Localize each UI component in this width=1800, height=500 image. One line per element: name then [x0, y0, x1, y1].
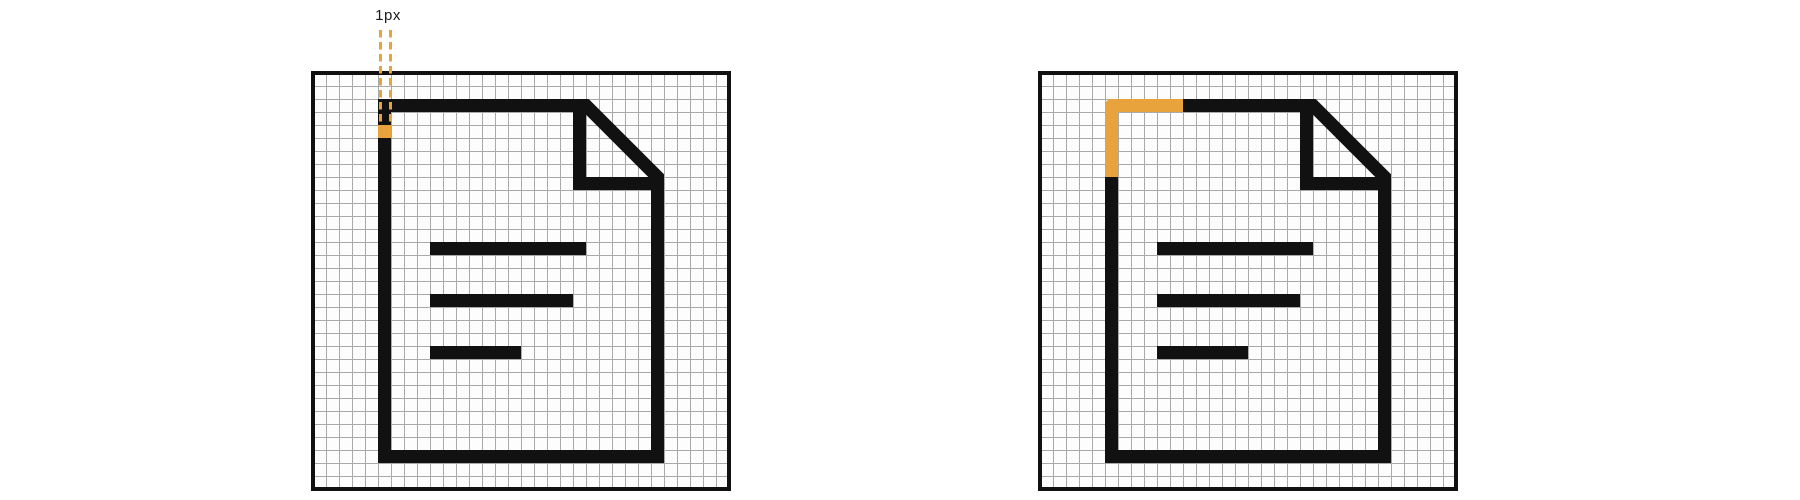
right-panel — [1040, 73, 1456, 489]
highlighted-pixel — [378, 125, 391, 138]
left-panel — [313, 73, 729, 489]
left-pixel-grid — [313, 73, 729, 489]
pixel-width-label: 1px — [375, 7, 401, 24]
pixel-stroke-illustration: 1px — [0, 0, 1800, 500]
right-pixel-grid — [1040, 73, 1456, 489]
figure-canvas: 1px — [0, 0, 1800, 500]
